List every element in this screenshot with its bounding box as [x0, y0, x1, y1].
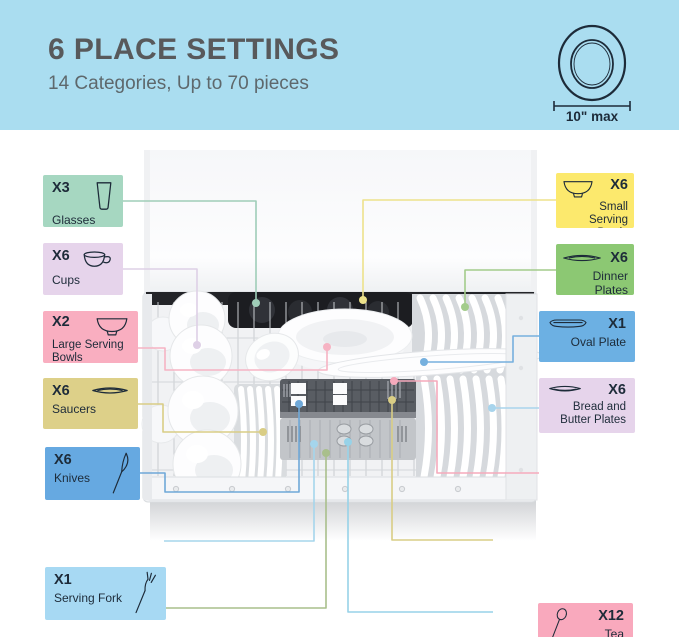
leader-line-small-serving-bowls — [359, 200, 557, 304]
knives-label: Knives — [54, 472, 106, 486]
glass-icon — [94, 181, 114, 211]
tea-spoons-label: Tea Spoons — [574, 628, 624, 637]
leader-line-salad-forks — [164, 449, 330, 608]
leader-line-saucers — [137, 404, 267, 436]
leader-line-dinner-plates — [461, 270, 557, 311]
cup-icon — [82, 249, 114, 271]
saucers-label: Saucers — [52, 403, 129, 417]
label-cups: X6 Cups — [43, 243, 123, 295]
label-oval-plate: X1 Oval Plate — [539, 311, 635, 362]
knife-icon — [108, 450, 134, 497]
leader-line-tea-spoons — [390, 377, 539, 473]
bowl-icon — [95, 315, 129, 337]
leader-line-serving-spoons — [344, 438, 493, 612]
serving-fork-label: Serving Fork — [54, 592, 132, 606]
leader-line-large-serving-bowls — [137, 343, 331, 370]
oval-plate-label: Oval Plate — [548, 336, 626, 350]
label-serving-fork: X1 Serving Fork — [45, 567, 166, 620]
bread-butter-plates-count: X6 — [608, 383, 626, 399]
glasses-label: Glasses — [52, 214, 114, 227]
saucers-count: X6 — [52, 384, 70, 400]
spoon-icon — [546, 606, 569, 637]
saucer-icon — [91, 384, 129, 397]
fork-icon — [132, 570, 160, 618]
label-knives: X6 Knives — [45, 447, 140, 500]
leader-line-serving-fork — [164, 440, 318, 541]
leader-line-oval-plate — [420, 336, 540, 366]
label-large-serving-bowls: X2 Large Serving Bowls — [43, 311, 138, 363]
label-small-serving-bowls: X6 Small Serving Bowls — [556, 173, 634, 228]
cups-label: Cups — [52, 274, 114, 288]
cups-count: X6 — [52, 249, 70, 265]
plate-icon — [562, 251, 602, 265]
leader-line-dinner-forks — [388, 396, 493, 540]
small-serving-bowls-label: Small Serving Bowls — [562, 201, 628, 228]
label-tea-spoons: X12 Tea Spoons — [538, 603, 633, 637]
oval-plate-count: X1 — [608, 317, 626, 333]
infographic-page: 6 PLACE SETTINGS 14 Categories, Up to 70… — [0, 0, 679, 637]
small-serving-bowls-count: X6 — [610, 178, 628, 194]
plate-icon — [548, 383, 582, 395]
bowl-icon — [562, 178, 594, 199]
bread-butter-plates-label: Bread and Butter Plates — [548, 401, 626, 427]
leader-line-glasses — [122, 201, 260, 307]
dinner-plates-count: X6 — [610, 251, 628, 267]
label-glasses: X3 Glasses — [43, 175, 123, 227]
glasses-count: X3 — [52, 181, 70, 197]
label-bread-butter-plates: X6 Bread and Butter Plates — [539, 378, 635, 433]
label-saucers: X6 Saucers — [43, 378, 138, 429]
large-serving-bowls-label: Large Serving Bowls — [52, 339, 129, 363]
oval-plate-icon — [548, 317, 588, 329]
label-dinner-plates: X6 Dinner Plates — [556, 244, 634, 295]
tea-spoons-count: X12 — [574, 609, 624, 625]
leader-line-bread-butter-plates — [488, 404, 540, 412]
serving-fork-count: X1 — [54, 573, 132, 589]
dinner-plates-label: Dinner Plates — [562, 270, 628, 295]
large-serving-bowls-count: X2 — [52, 315, 70, 331]
knives-count: X6 — [54, 453, 106, 469]
